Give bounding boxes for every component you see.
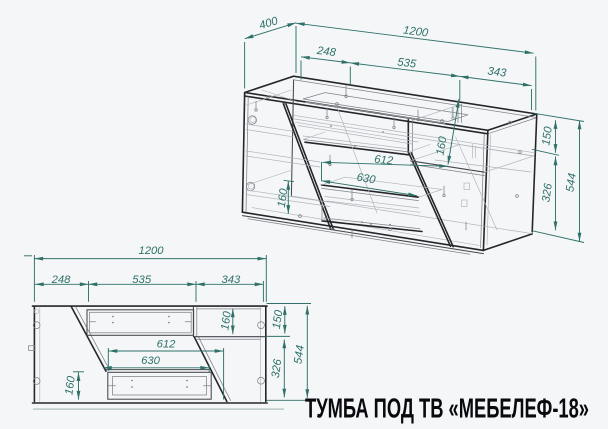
svg-text:ТУМБА ПОД ТВ «МЕБЕЛЕФ-18»: ТУМБА ПОД ТВ «МЕБЕЛЕФ-18» (305, 393, 589, 424)
svg-text:248: 248 (315, 45, 337, 59)
svg-text:612: 612 (374, 154, 395, 168)
svg-text:612: 612 (157, 338, 177, 350)
svg-text:630: 630 (141, 355, 161, 367)
svg-text:248: 248 (51, 274, 72, 286)
svg-text:1200: 1200 (138, 245, 164, 257)
svg-text:343: 343 (221, 274, 241, 286)
svg-text:535: 535 (132, 274, 152, 286)
svg-text:343: 343 (487, 65, 508, 79)
svg-text:535: 535 (397, 56, 418, 70)
